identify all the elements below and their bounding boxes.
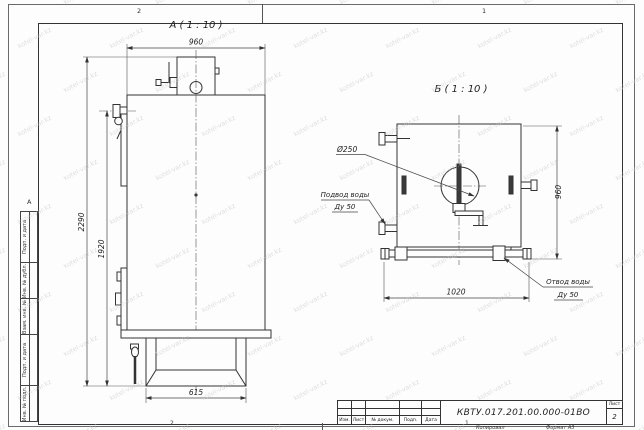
door-handle xyxy=(115,114,127,186)
svg-text:Подвод воды: Подвод воды xyxy=(321,191,370,199)
svg-text:Отвод воды: Отвод воды xyxy=(546,278,590,286)
view-a-front: А ( 1 : 10 ) 960 xyxy=(77,20,271,403)
svg-text:615: 615 xyxy=(189,388,204,397)
drawing-svg: А ( 1 : 10 ) 960 xyxy=(0,0,644,430)
ash-latch-lever xyxy=(131,344,139,384)
svg-text:960: 960 xyxy=(189,38,204,47)
chimney-box xyxy=(156,57,219,95)
svg-text:Ø250: Ø250 xyxy=(336,145,357,154)
bottom-header-rail xyxy=(381,246,531,261)
svg-text:Ду 50: Ду 50 xyxy=(557,291,579,299)
svg-text:1920: 1920 xyxy=(97,239,106,258)
view-b-label: Б ( 1 : 10 ) xyxy=(434,84,487,95)
svg-text:Ду 50: Ду 50 xyxy=(334,203,356,211)
boiler-base xyxy=(121,330,271,386)
pipe-stub-right xyxy=(521,180,537,191)
rear-slot-right xyxy=(509,176,513,194)
dimension-1020: 1020 xyxy=(384,262,529,302)
dimension-615: 615 xyxy=(146,388,246,403)
dimension-1920: 1920 xyxy=(97,111,107,386)
hinge-strip xyxy=(116,268,128,330)
svg-text:1020: 1020 xyxy=(446,288,465,297)
svg-text:2290: 2290 xyxy=(77,212,86,231)
svg-text:960: 960 xyxy=(554,185,563,200)
dimension-960-rear: 960 xyxy=(523,126,563,259)
callout-water-inlet: Подвод воды Ду 50 xyxy=(321,191,385,224)
view-a-label: А ( 1 : 10 ) xyxy=(169,20,223,31)
drawing-sheet: 2 1 2 1 А Подп. и дата Инв. № дубл. Взам… xyxy=(0,0,644,430)
view-b-rear: Б ( 1 : 10 ) xyxy=(321,84,593,302)
pipe-stub-inlet xyxy=(379,222,397,235)
callout-water-outlet: Отвод воды Ду 50 xyxy=(504,258,593,300)
rear-slot-left xyxy=(402,176,406,194)
